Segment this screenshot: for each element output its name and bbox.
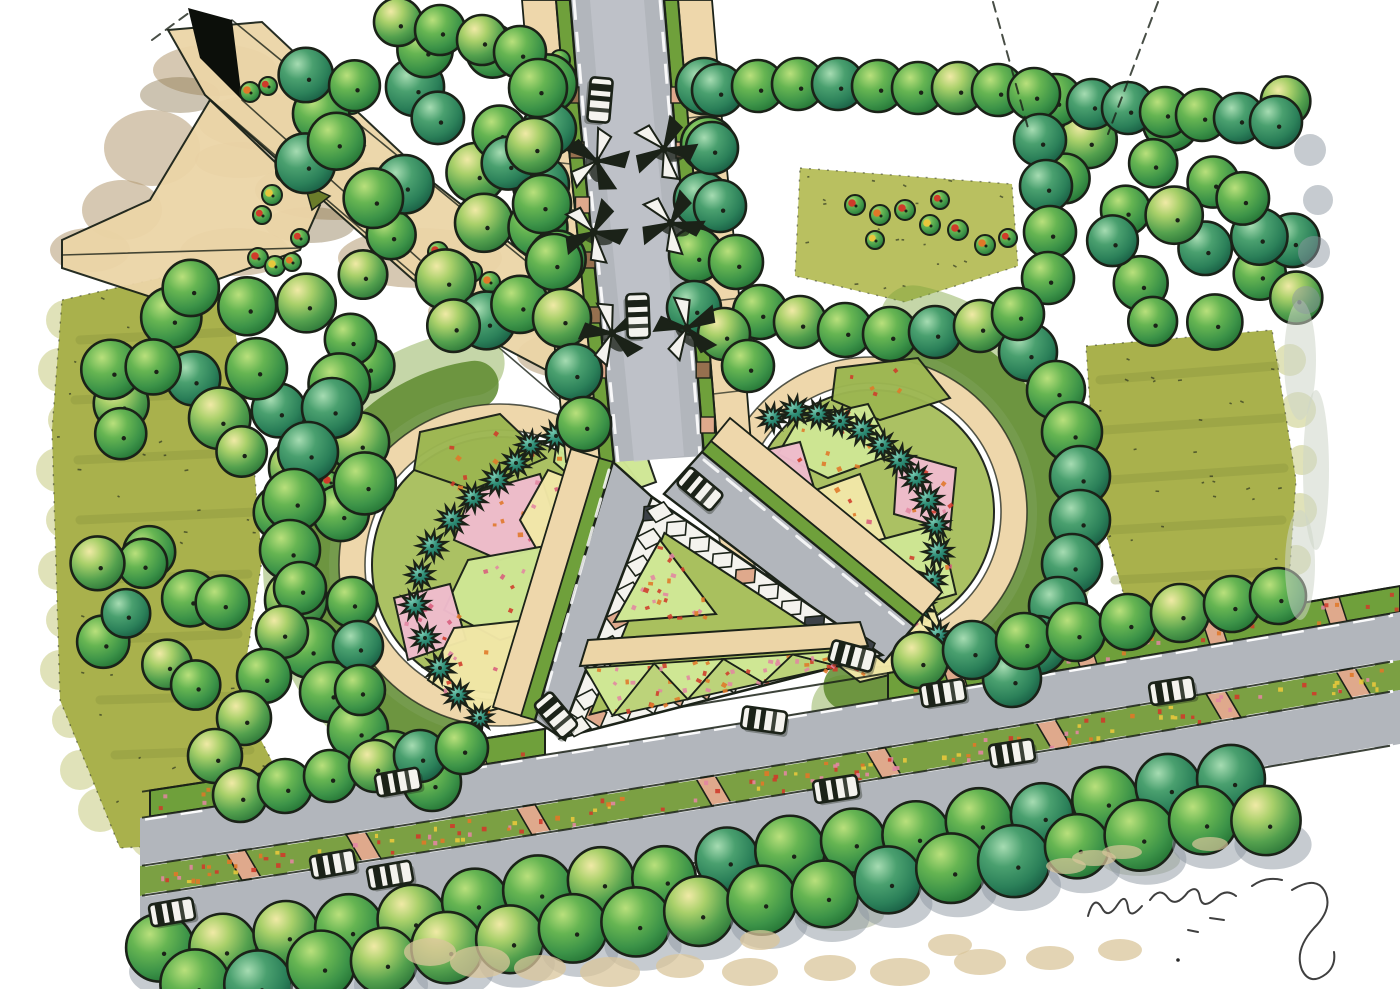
- tree-canopy: [196, 576, 250, 630]
- tree-canopy: [506, 118, 562, 174]
- tree-canopy: [226, 338, 287, 399]
- tree-canopy: [436, 722, 488, 774]
- tree-canopy: [709, 235, 763, 289]
- car-icon: [623, 294, 650, 342]
- tree-canopy: [513, 175, 571, 233]
- tree-canopy: [344, 169, 403, 228]
- signature-scribble: [1088, 879, 1334, 979]
- tree-canopy: [1087, 215, 1138, 266]
- tree-canopy: [1250, 96, 1302, 148]
- tree-canopy: [455, 194, 513, 252]
- tree-canopy: [892, 632, 948, 688]
- tree-canopy: [1008, 68, 1060, 120]
- tree-canopy: [978, 825, 1050, 897]
- tree-canopy: [539, 894, 607, 962]
- tree-canopy: [509, 59, 567, 117]
- tree-canopy: [218, 277, 276, 335]
- tree-canopy: [943, 621, 1001, 679]
- tree-canopy: [916, 833, 986, 903]
- tree-canopy: [792, 861, 859, 928]
- tree-canopy: [95, 408, 146, 459]
- tree-canopy: [1128, 297, 1177, 346]
- tree-canopy: [1231, 786, 1300, 855]
- tree-canopy: [1100, 594, 1156, 650]
- car-icon: [584, 77, 613, 126]
- tree-canopy: [304, 750, 356, 802]
- tree-canopy: [427, 299, 480, 352]
- tree-canopy: [71, 536, 125, 590]
- tree-canopy: [163, 260, 219, 316]
- tree-canopy: [339, 250, 387, 298]
- tree-canopy: [909, 306, 961, 358]
- tree-canopy: [216, 426, 266, 476]
- plan-artwork: [0, 0, 1400, 989]
- tree-canopy: [996, 613, 1052, 669]
- tree-canopy: [333, 621, 383, 671]
- tree-canopy: [412, 92, 464, 144]
- tree-canopy: [664, 876, 734, 946]
- tree-canopy: [1047, 603, 1105, 661]
- tree-canopy: [277, 274, 336, 333]
- tree-canopy: [335, 665, 385, 715]
- tree-canopy: [1129, 139, 1177, 187]
- tree-canopy: [855, 846, 922, 913]
- tree-canopy: [601, 887, 670, 956]
- tree-canopy: [287, 931, 355, 989]
- tree-canopy: [279, 48, 333, 102]
- tree-canopy: [1187, 294, 1242, 349]
- tree-canopy: [1217, 172, 1269, 224]
- tree-canopy: [308, 113, 365, 170]
- tree-canopy: [546, 344, 602, 400]
- tree-canopy: [329, 60, 380, 111]
- tree-canopy: [102, 589, 150, 637]
- tree-canopy: [327, 577, 377, 627]
- tree-canopy: [557, 397, 611, 451]
- tree-canopy: [722, 340, 774, 392]
- tree-canopy: [171, 660, 220, 709]
- site-plan-canvas: [0, 0, 1400, 989]
- tree-canopy: [126, 339, 181, 394]
- tree-canopy: [334, 452, 396, 514]
- tree-canopy: [1146, 187, 1203, 244]
- tree-canopy: [1024, 206, 1076, 258]
- tree-canopy: [992, 288, 1044, 340]
- tree-canopy: [727, 866, 796, 935]
- tree-canopy: [1151, 584, 1209, 642]
- tree-canopy: [258, 759, 312, 813]
- tree-canopy: [1020, 160, 1072, 212]
- tree-canopy: [1014, 114, 1066, 166]
